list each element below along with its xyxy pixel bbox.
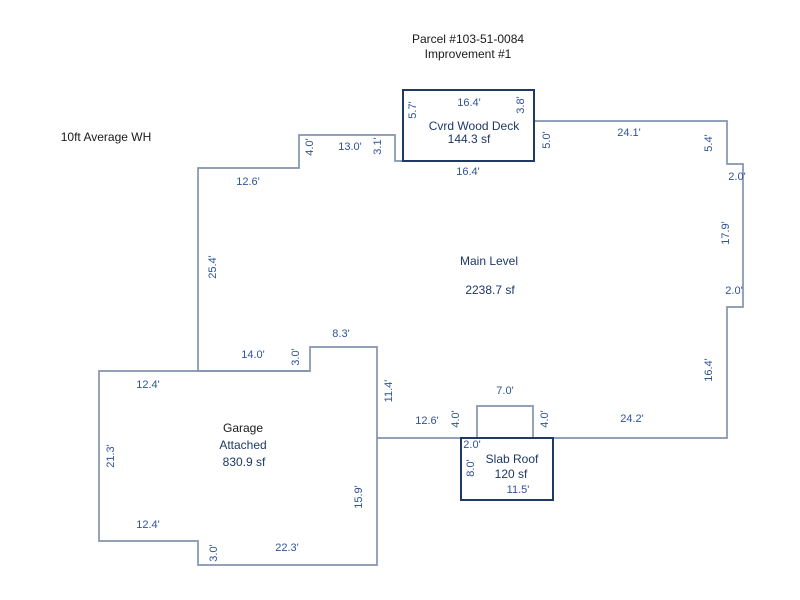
- dim-east-lower: 16.4': [703, 358, 715, 382]
- deck-area: 144.3 sf: [448, 133, 491, 145]
- dim-bump-right: 4.0': [539, 410, 551, 427]
- dim-top-step-down: 3.1': [372, 137, 384, 154]
- slab-area: 120 sf: [495, 468, 528, 480]
- dim-garage-sw-step: 3.0': [208, 544, 220, 561]
- dim-deck-top: 16.4': [457, 97, 481, 109]
- parcel-title: Parcel #103-51-0084: [412, 33, 524, 45]
- slab-bump-outline: [477, 406, 533, 438]
- dim-ne-step-down: 5.4': [703, 134, 715, 151]
- dim-ne-step-out: 2.0': [728, 171, 745, 183]
- dim-bottom-east: 24.2': [620, 413, 644, 425]
- dim-deck-right-lower: 5.0': [541, 131, 553, 148]
- deck-name: Cvrd Wood Deck: [429, 120, 519, 132]
- dim-top-seg2: 13.0': [338, 141, 362, 153]
- dim-east-upper: 17.9': [720, 221, 732, 245]
- improvement-title: Improvement #1: [425, 48, 512, 60]
- main-level-area: 2238.7 sf: [465, 284, 514, 296]
- property-sketch-page: Parcel #103-51-0084 Improvement #1 10ft …: [0, 0, 800, 600]
- sketch-canvas: [0, 0, 800, 600]
- dim-garage-top: 12.4': [136, 379, 160, 391]
- dim-garage-west: 21.3': [105, 444, 117, 468]
- dim-west-side: 25.4': [207, 255, 219, 279]
- dim-east-step-in: 2.0': [725, 285, 742, 297]
- dim-garage-sw: 12.4': [136, 519, 160, 531]
- garage-area: 830.9 sf: [223, 456, 266, 468]
- dim-notch-rise: 3.0': [290, 348, 302, 365]
- dim-slab-bottom: 11.5': [507, 484, 530, 496]
- dim-top-seg3: 24.1': [617, 127, 641, 139]
- dim-top-step-up: 4.0': [304, 138, 316, 155]
- dim-bump-top: 7.0': [496, 385, 513, 397]
- slab-name: Slab Roof: [486, 453, 539, 465]
- dim-notch-top: 8.3': [332, 328, 349, 340]
- main-level-name: Main Level: [460, 255, 518, 267]
- garage-name: Garage: [223, 422, 263, 434]
- dim-slab-left: 8.0': [465, 459, 477, 476]
- dim-bump-left: 4.0': [450, 410, 462, 427]
- dim-garage-bottom: 22.3': [275, 542, 299, 554]
- dim-top-seg1: 12.6': [236, 176, 260, 188]
- wall-height-note: 10ft Average WH: [61, 131, 152, 143]
- garage-type: Attached: [219, 439, 266, 451]
- dim-garage-east: 15.9': [353, 485, 365, 509]
- dim-deck-bottom: 16.4': [456, 166, 480, 178]
- dim-notch-right: 11.4': [383, 380, 395, 403]
- dim-deck-left: 5.7': [407, 101, 419, 118]
- dim-deck-right-upper: 3.8': [515, 96, 527, 113]
- dim-slab-inset: 2.0': [463, 439, 480, 451]
- dim-bottom-mid: 12.6': [415, 415, 439, 427]
- dim-notch-bottom: 14.0': [241, 349, 265, 361]
